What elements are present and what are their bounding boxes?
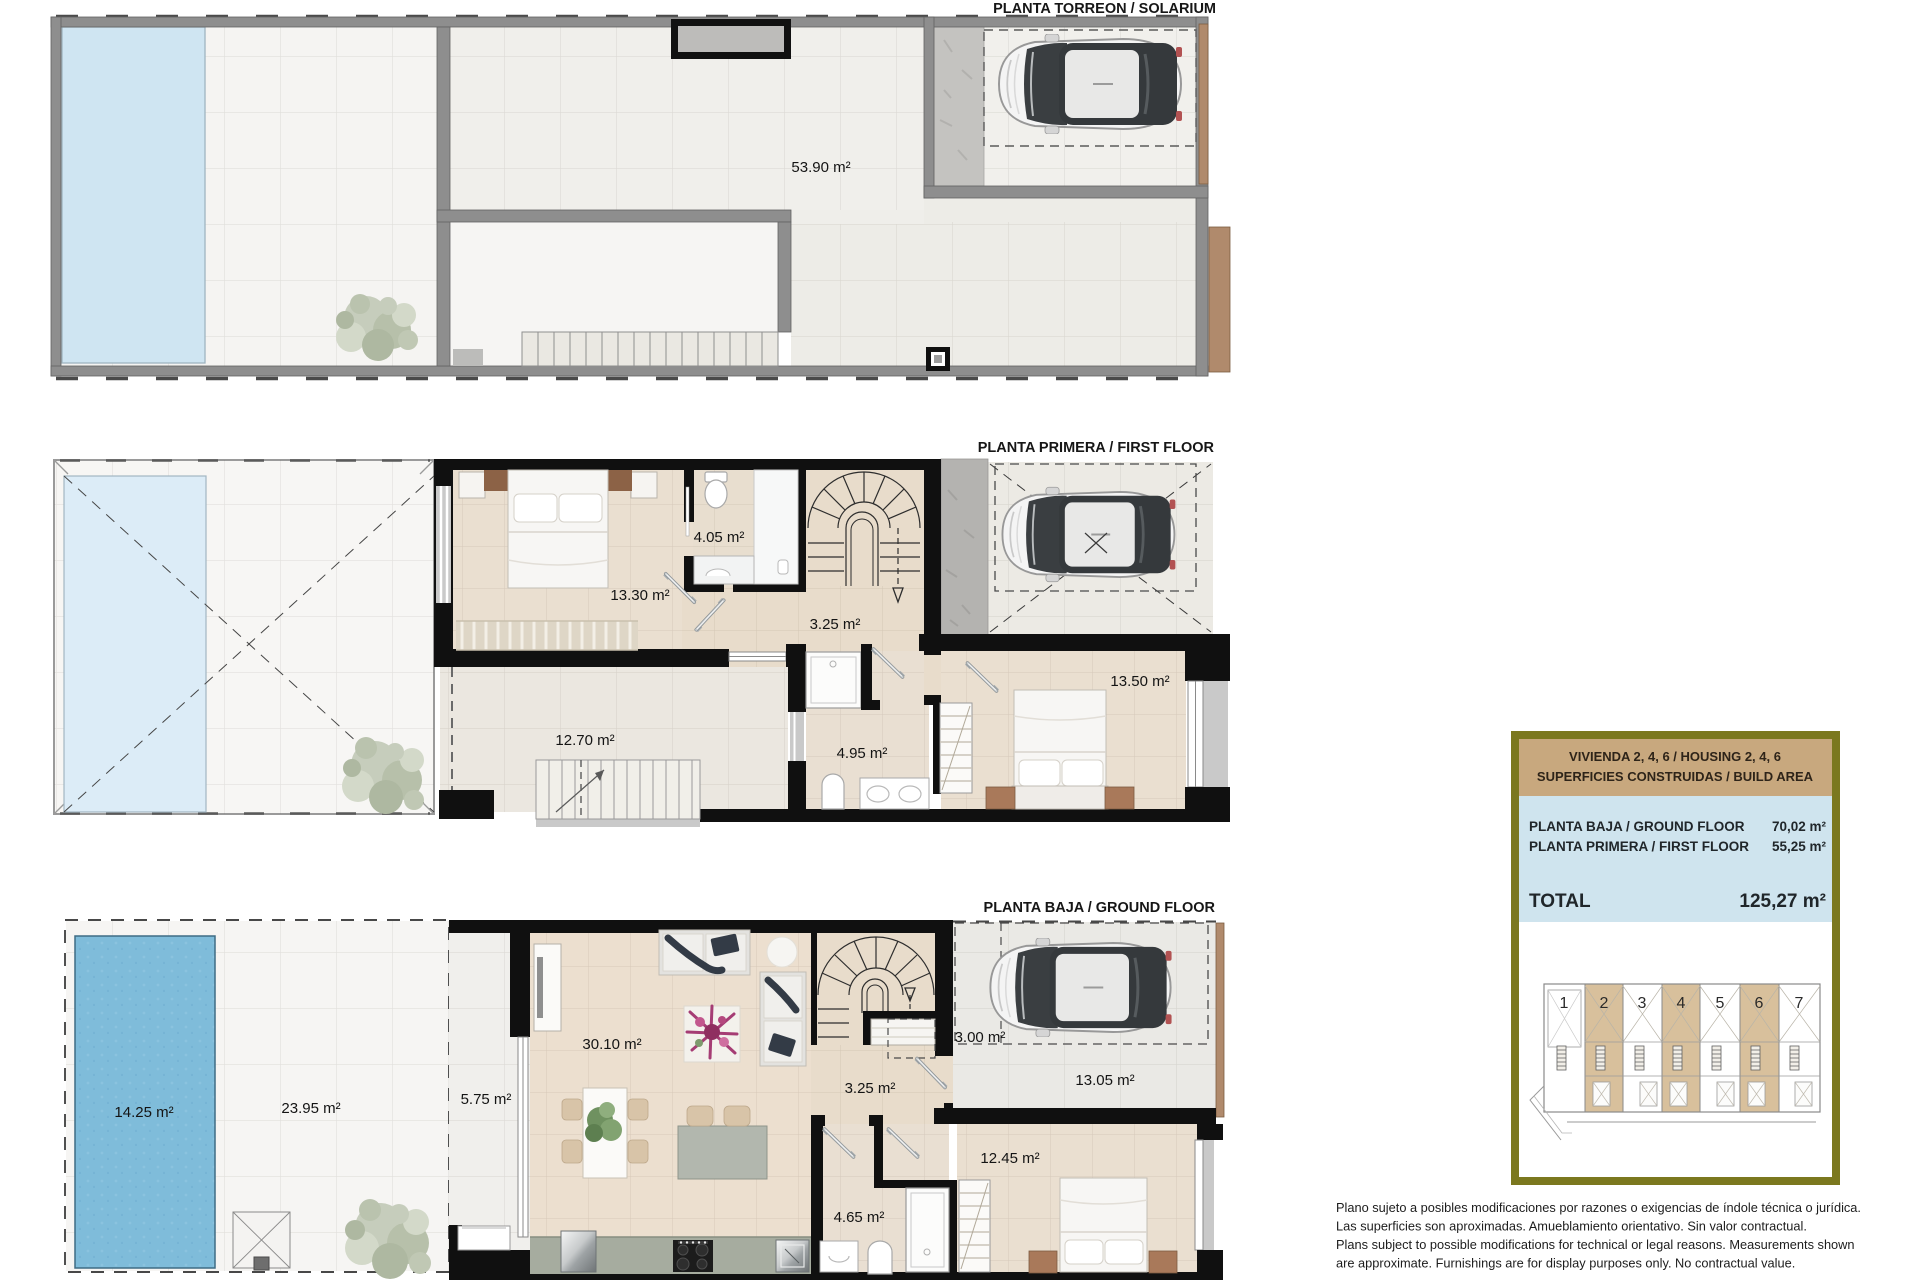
svg-text:PLANTA PRIMERA / FIRST FLOOR: PLANTA PRIMERA / FIRST FLOOR: [978, 440, 1215, 456]
svg-text:are approximate. Furnishings a: are approximate. Furnishings are for dis…: [1336, 1256, 1795, 1271]
svg-text:70,02 m²: 70,02 m²: [1772, 819, 1827, 834]
svg-text:30.10 m²: 30.10 m²: [582, 1036, 641, 1053]
svg-text:23.95 m²: 23.95 m²: [281, 1100, 340, 1117]
svg-text:Plans subject to possible modi: Plans subject to possible modifications …: [1336, 1237, 1855, 1252]
svg-text:4.65 m²: 4.65 m²: [834, 1209, 885, 1226]
svg-text:5: 5: [1716, 995, 1725, 1012]
svg-text:6: 6: [1755, 995, 1764, 1012]
svg-text:VIVIENDA 2, 4, 6 / HOUSING 2,: VIVIENDA 2, 4, 6 / HOUSING 2, 4, 6: [1569, 749, 1781, 764]
svg-text:12.45 m²: 12.45 m²: [980, 1150, 1039, 1167]
svg-text:53.90 m²: 53.90 m²: [791, 159, 850, 176]
svg-text:13.05 m²: 13.05 m²: [1075, 1072, 1134, 1089]
svg-text:TOTAL: TOTAL: [1529, 891, 1591, 912]
svg-text:4: 4: [1677, 995, 1686, 1012]
svg-text:7: 7: [1795, 995, 1804, 1012]
svg-text:PLANTA TORREON / SOLARIUM: PLANTA TORREON / SOLARIUM: [993, 1, 1216, 17]
svg-text:3.25 m²: 3.25 m²: [845, 1080, 896, 1097]
svg-text:PLANTA PRIMERA / FIRST FLOOR: PLANTA PRIMERA / FIRST FLOOR: [1529, 839, 1749, 854]
svg-text:3.00 m²: 3.00 m²: [955, 1029, 1006, 1046]
svg-text:SUPERFICIES CONSTRUIDAS / BUIL: SUPERFICIES CONSTRUIDAS / BUILD AREA: [1537, 769, 1814, 784]
svg-text:14.25 m²: 14.25 m²: [114, 1104, 173, 1121]
svg-text:Plano sujeto a posibles modifi: Plano sujeto a posibles modificaciones p…: [1336, 1200, 1861, 1215]
svg-text:PLANTA BAJA / GROUND FLOOR: PLANTA BAJA / GROUND FLOOR: [984, 900, 1216, 916]
svg-text:4.95 m²: 4.95 m²: [837, 745, 888, 762]
svg-text:Las superficies son aproximada: Las superficies son aproximadas. Amuebla…: [1336, 1219, 1807, 1234]
svg-text:55,25 m²: 55,25 m²: [1772, 839, 1827, 854]
svg-text:125,27 m²: 125,27 m²: [1739, 891, 1826, 912]
svg-text:13.30 m²: 13.30 m²: [610, 587, 669, 604]
svg-text:PLANTA BAJA / GROUND FLOOR: PLANTA BAJA / GROUND FLOOR: [1529, 819, 1745, 834]
svg-text:5.75 m²: 5.75 m²: [461, 1091, 512, 1108]
svg-text:12.70 m²: 12.70 m²: [555, 732, 614, 749]
svg-text:3: 3: [1638, 995, 1647, 1012]
svg-text:13.50 m²: 13.50 m²: [1110, 673, 1169, 690]
svg-text:3.25 m²: 3.25 m²: [810, 616, 861, 633]
svg-text:2: 2: [1600, 995, 1609, 1012]
svg-text:4.05 m²: 4.05 m²: [694, 529, 745, 546]
svg-text:1: 1: [1560, 995, 1569, 1012]
